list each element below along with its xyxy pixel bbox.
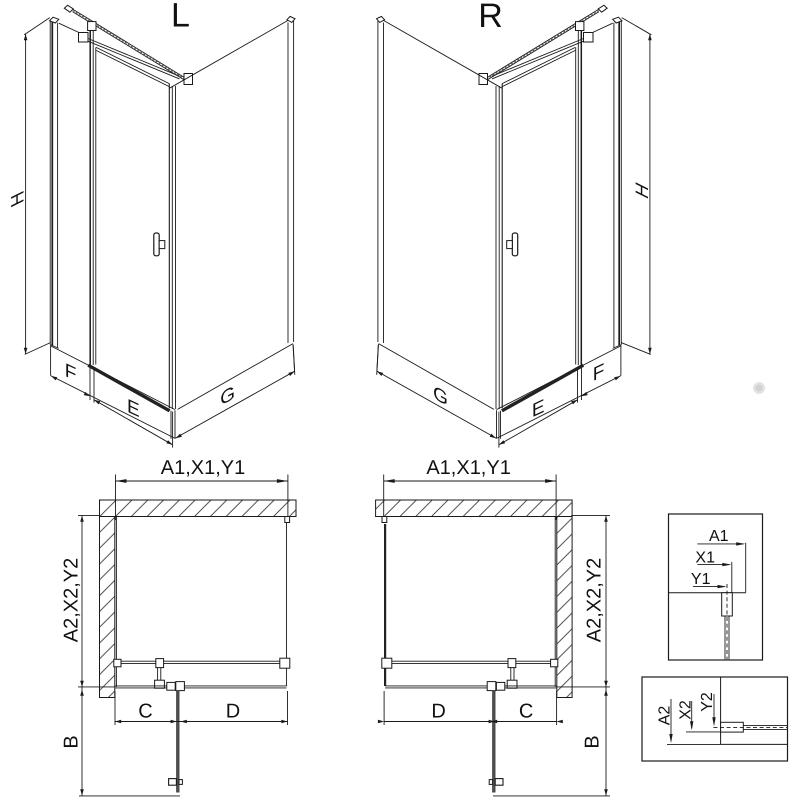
svg-text:C: C xyxy=(519,701,533,723)
svg-text:C: C xyxy=(138,701,152,723)
svg-text:D: D xyxy=(431,701,445,723)
svg-text:A2: A2 xyxy=(657,706,674,726)
svg-text:X1: X1 xyxy=(695,549,715,566)
svg-text:A2,X2,Y2: A2,X2,Y2 xyxy=(584,558,606,643)
svg-text:Y1: Y1 xyxy=(691,571,711,588)
svg-text:A1,X1,Y1: A1,X1,Y1 xyxy=(161,457,246,479)
svg-text:B: B xyxy=(61,735,83,748)
svg-text:D: D xyxy=(226,701,240,723)
svg-text:Y2: Y2 xyxy=(699,692,716,712)
svg-text:A1: A1 xyxy=(709,528,729,545)
svg-text:L: L xyxy=(171,0,190,35)
svg-text:A2,X2,Y2: A2,X2,Y2 xyxy=(61,558,83,643)
svg-text:B: B xyxy=(582,735,604,748)
svg-text:X2: X2 xyxy=(677,700,694,720)
svg-text:A1,X1,Y1: A1,X1,Y1 xyxy=(426,457,511,479)
svg-text:R: R xyxy=(478,0,503,35)
